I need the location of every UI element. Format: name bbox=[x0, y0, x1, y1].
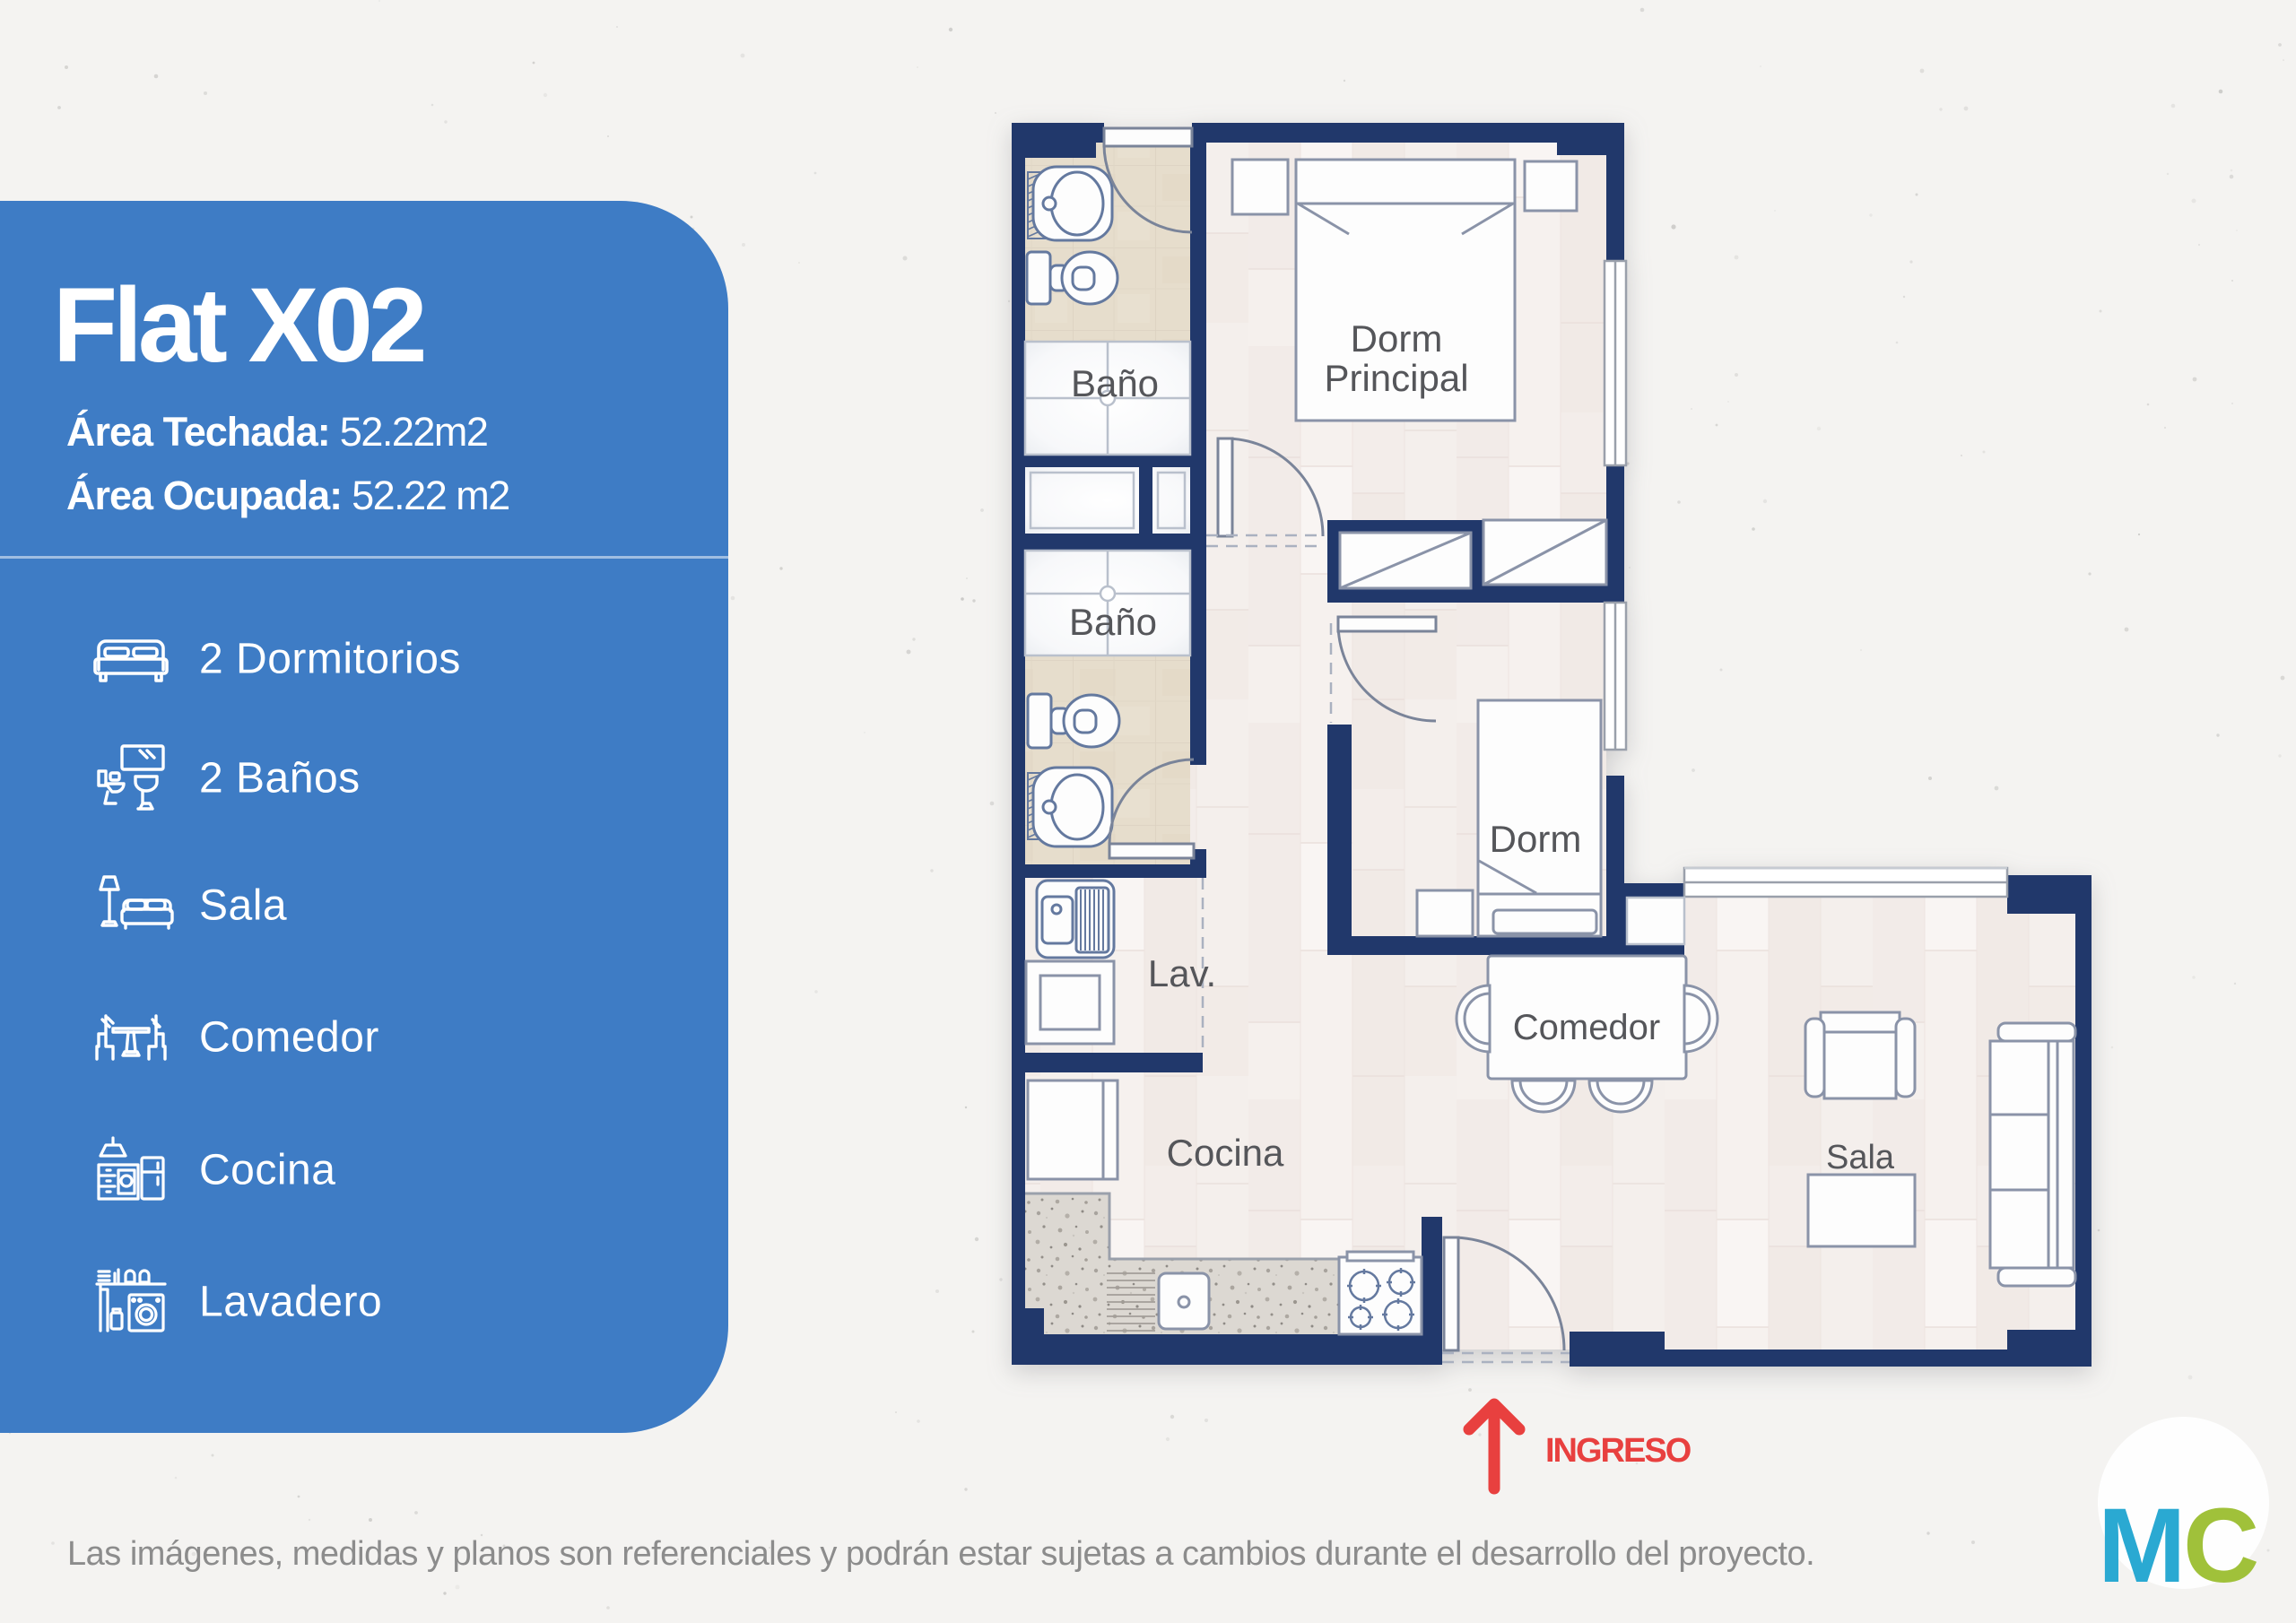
svg-text:Dorm: Dorm bbox=[1490, 818, 1582, 860]
svg-text:Baño: Baño bbox=[1069, 601, 1157, 643]
svg-text:Baño: Baño bbox=[1071, 362, 1159, 404]
svg-text:INGRESO: INGRESO bbox=[1545, 1432, 1691, 1470]
svg-text:Lav.: Lav. bbox=[1148, 952, 1216, 994]
svg-text:Dorm: Dorm bbox=[1351, 317, 1443, 360]
svg-text:Comedor: Comedor bbox=[1513, 1008, 1661, 1047]
svg-text:Cocina: Cocina bbox=[1167, 1132, 1284, 1174]
svg-text:Principal: Principal bbox=[1324, 357, 1468, 399]
svg-text:Sala: Sala bbox=[1826, 1139, 1895, 1176]
